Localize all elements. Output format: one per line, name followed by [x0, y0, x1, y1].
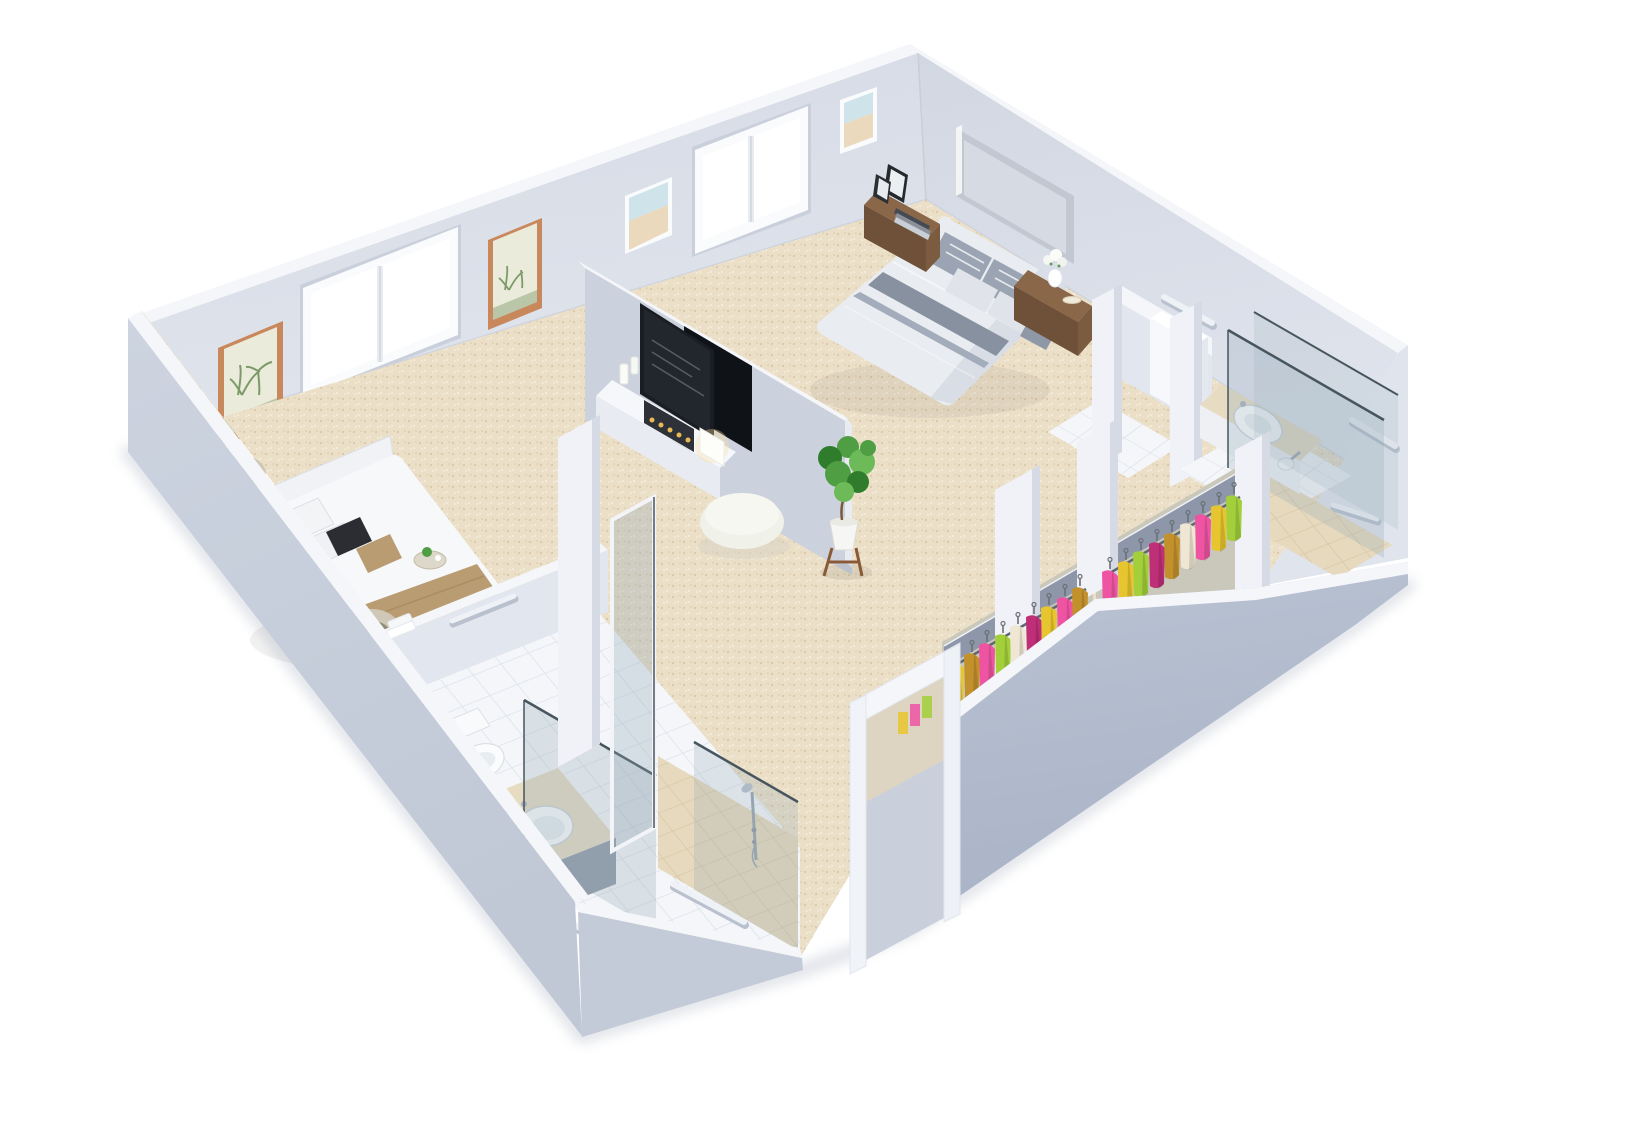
closet-divider-edge	[1262, 431, 1270, 596]
plate	[1063, 297, 1081, 304]
doorway-jamb	[944, 644, 960, 922]
floor-plan-canvas	[0, 0, 1650, 1142]
hall-partition-edge	[592, 415, 600, 748]
doorway-jamb	[850, 695, 866, 974]
glass-door-panel	[612, 497, 654, 851]
floor-plan-render	[0, 0, 1650, 1142]
closet-divider-edge	[1110, 419, 1118, 584]
bathright-partition-edge	[1194, 301, 1202, 474]
